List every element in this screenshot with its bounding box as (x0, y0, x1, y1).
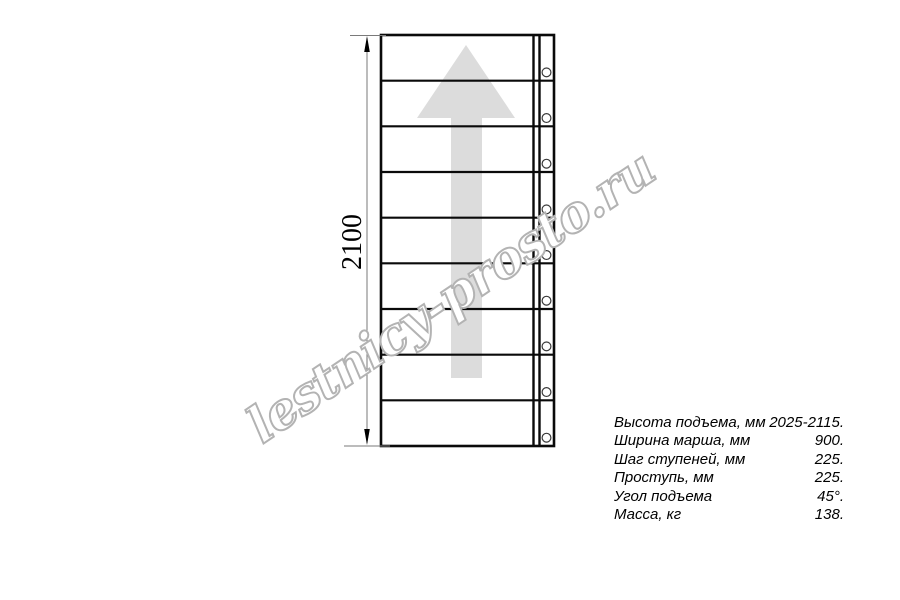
spec-label: Шаг ступеней, мм (614, 451, 745, 469)
spec-value: 225. (815, 451, 844, 469)
baluster-circle (542, 388, 551, 397)
baluster-circle (542, 159, 551, 168)
specs-table: Высота подъема, мм 2025-2115. Ширина мар… (614, 414, 844, 524)
spec-row: Высота подъема, мм 2025-2115. (614, 414, 844, 432)
spec-row: Шаг ступеней, мм 225. (614, 451, 844, 469)
spec-value: 138. (815, 506, 844, 524)
baluster-circle (542, 114, 551, 123)
spec-value: 900. (815, 432, 844, 450)
spec-label: Ширина марша, мм (614, 432, 750, 450)
spec-label: Масса, кг (614, 506, 681, 524)
spec-row: Проступь, мм 225. (614, 469, 844, 487)
spec-value: 2025-2115. (769, 414, 844, 432)
dimension-arrow-up-icon (364, 36, 370, 52)
spec-label: Высота подъема, мм (614, 414, 766, 432)
spec-value: 225. (815, 469, 844, 487)
baluster-circle (542, 342, 551, 351)
spec-label: Угол подъема (614, 488, 712, 506)
spec-row: Масса, кг 138. (614, 506, 844, 524)
watermark-text: lestnicy-prosto.ru (236, 138, 665, 454)
baluster-circle (542, 68, 551, 77)
baluster-circle (542, 296, 551, 305)
spec-value: 45°. (817, 488, 844, 506)
dimension-label: 2100 (337, 214, 368, 270)
spec-label: Проступь, мм (614, 469, 714, 487)
baluster-circle (542, 433, 551, 442)
drawing-canvas: 2100 lestnicy-prosto.ru Высота подъема, … (0, 0, 900, 600)
spec-row: Угол подъема 45°. (614, 488, 844, 506)
spec-row: Ширина марша, мм 900. (614, 432, 844, 450)
dimension-arrow-down-icon (364, 429, 370, 445)
